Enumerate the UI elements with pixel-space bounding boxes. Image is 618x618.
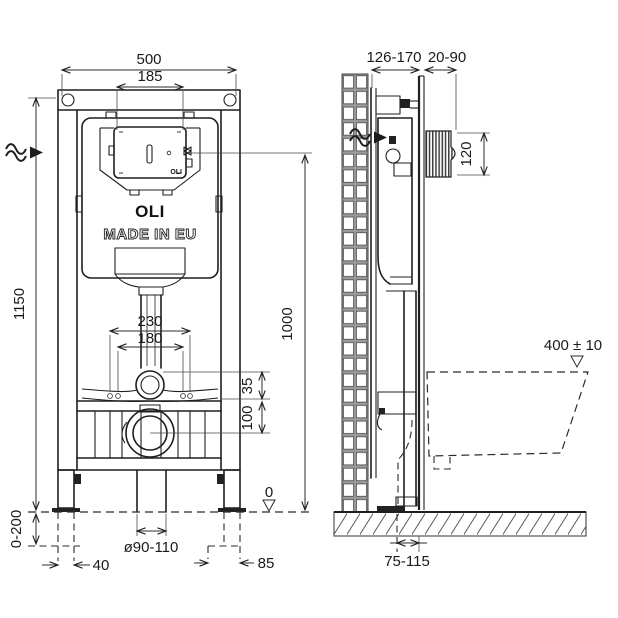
datum-triangle [263, 500, 275, 511]
front-view: OLI OLI MADE IN EU [6, 51, 312, 574]
side-cistern [378, 118, 416, 291]
svg-text:75-115: 75-115 [384, 553, 430, 570]
svg-text:126-170: 126-170 [366, 49, 421, 66]
svg-text:500: 500 [136, 51, 161, 68]
legs-and-feet [52, 470, 246, 512]
svg-text:230: 230 [137, 313, 162, 330]
panel-clip-right [184, 147, 191, 155]
side-view: 126-170 20-90 120 1000 400 ± 10 [188, 49, 602, 570]
panel-pin [167, 151, 171, 155]
svg-text:100: 100 [239, 405, 256, 430]
brand-logo-text: OLI [135, 202, 165, 221]
made-in-eu-text: MADE IN EU [103, 226, 196, 243]
dim-foot-offset-left: 40 [42, 557, 109, 574]
dim-panel-width: 185 [117, 68, 183, 130]
inlet-nipple [389, 136, 396, 144]
svg-text:180: 180 [137, 330, 162, 347]
svg-text:400 ± 10: 400 ± 10 [544, 337, 602, 354]
datum-bowl-height: 400 ± 10 [544, 337, 602, 367]
svg-text:85: 85 [258, 555, 275, 572]
technical-drawing: OLI OLI MADE IN EU [0, 0, 618, 618]
svg-text:1150: 1150 [11, 288, 28, 320]
flush-pipe [115, 248, 185, 458]
leg-lock-clip [217, 474, 224, 484]
datum-triangle [571, 356, 583, 367]
panel-slot [147, 145, 152, 163]
flush-plate-shaft [426, 131, 455, 177]
water-supply-arrow-front [6, 144, 43, 161]
svg-text:20-90: 20-90 [428, 49, 466, 66]
svg-text:185: 185 [137, 68, 162, 85]
dim-foot-offset-right: 85 [194, 555, 274, 572]
fixing-bolt [181, 394, 186, 399]
dim-plate-height: 120 [457, 133, 490, 175]
dim-frame-depth: 126-170 [366, 49, 421, 88]
fixing-bolt [188, 394, 193, 399]
svg-text:1000: 1000 [279, 307, 296, 340]
svg-text:ø90-110: ø90-110 [124, 539, 179, 556]
drain-outlet [122, 405, 174, 457]
dim-drain-diameter: ø90-110 [124, 514, 179, 556]
fill-valve [386, 149, 400, 163]
datum-floor-zero: 0 [263, 484, 275, 511]
svg-text:0-200: 0-200 [8, 510, 25, 548]
dim-fixing-width-inner: 180 [118, 330, 183, 392]
wall-anchor-bolt [400, 99, 410, 108]
leg-lock-clip [74, 474, 81, 484]
fixing-bolt [116, 394, 121, 399]
dim-inlet-offset: 35 [163, 372, 270, 399]
frame-bolt-hole-right [224, 94, 236, 106]
front-frame [58, 90, 240, 470]
access-panel: OLI [109, 127, 192, 178]
panel-logo-text: OLI [170, 169, 182, 176]
dim-leg-adjustment: 0-200 [8, 510, 36, 548]
side-flush-pipe [377, 291, 417, 512]
svg-text:0: 0 [265, 484, 273, 501]
dim-wall-thickness: 20-90 [425, 49, 466, 130]
dim-fixing-width-outer: 230 [110, 313, 190, 392]
finished-wall-line [419, 76, 424, 510]
fixing-bolt [108, 394, 113, 399]
floor-slab [334, 512, 586, 536]
toilet-bowl-outline [427, 372, 588, 469]
installation-frame-drawing: OLI OLI MADE IN EU [0, 0, 618, 618]
dim-panel-height: 1000 [188, 153, 312, 510]
svg-text:120: 120 [458, 141, 475, 166]
svg-text:35: 35 [239, 378, 256, 395]
water-inlet [136, 371, 164, 399]
svg-text:40: 40 [93, 557, 110, 574]
valve-body [394, 163, 411, 176]
frame-bolt-hole-left [62, 94, 74, 106]
cistern [76, 112, 222, 278]
